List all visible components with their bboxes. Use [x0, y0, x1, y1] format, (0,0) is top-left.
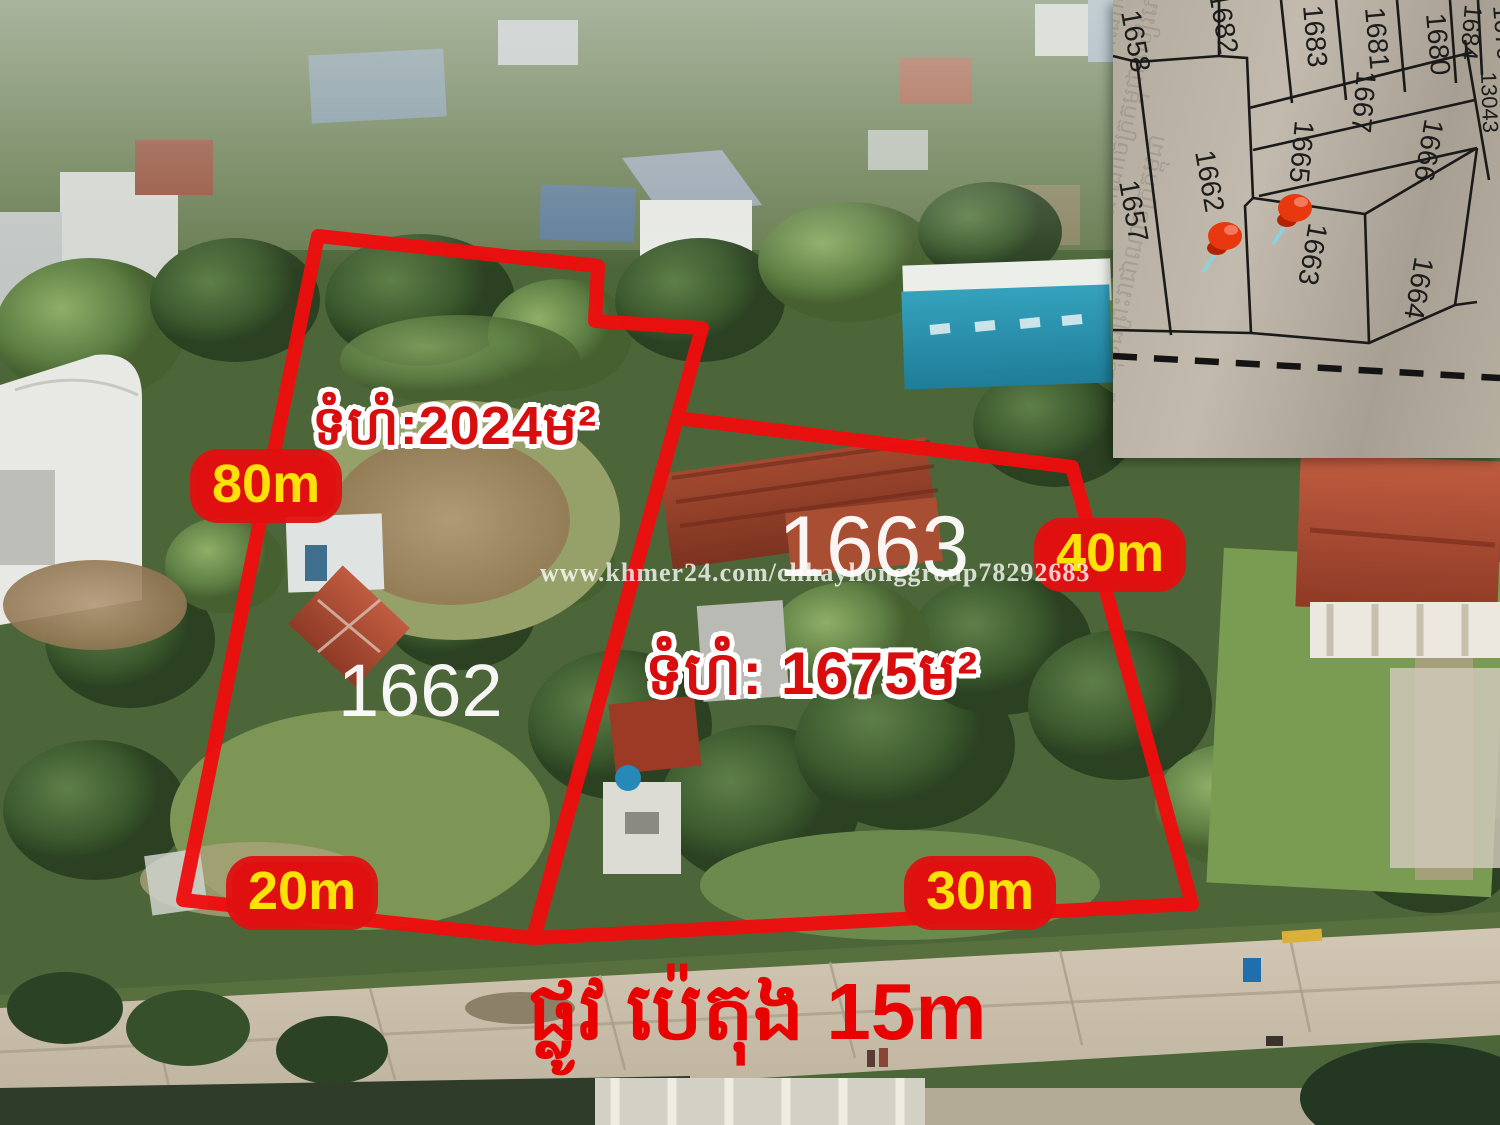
inset-parcel-number: 1680 — [1420, 12, 1456, 77]
inset-parcel-number: 1665 — [1284, 119, 1320, 184]
plot-number-1662: 1662 — [338, 648, 503, 733]
road-label: ផ្លូវ ប៉េតុង 15m — [528, 962, 986, 1079]
inset-parcel-number: 1662 — [1189, 148, 1230, 215]
blue-bin — [1243, 958, 1261, 982]
water-tank — [615, 765, 641, 791]
villa-roof — [1295, 455, 1500, 614]
inset-parcel-drawing: 1658 1682 1683 1681 1680 1684 1679 13043… — [1113, 0, 1500, 458]
inset-parcel-number: 1681 — [1359, 6, 1395, 71]
inset-parcel-number: 1684 — [1454, 3, 1487, 61]
area-label-plot-1663: ទំហំ: 1675ម² — [645, 636, 978, 724]
area-label-plot-1662: ទំហំ:2024ម² — [312, 392, 597, 471]
cadastral-inset-map: ព្រះរាជាណាចក្រកម្ពុជា សៀវភៅគោលបញ្ជីដីធ្ល… — [1113, 0, 1500, 458]
dimension-label-30m: 30m — [910, 862, 1050, 924]
inset-parcel-number: 1664 — [1398, 255, 1439, 322]
blue-building — [901, 284, 1112, 389]
villa-walls — [1310, 602, 1500, 658]
pushpin-icon — [1203, 222, 1242, 272]
inset-parcel-number: 1683 — [1297, 4, 1333, 69]
inset-parcel-number: 1658 — [1115, 8, 1156, 75]
inset-parcel-number: 13043 — [1476, 71, 1500, 133]
white-gate-wall — [595, 1078, 925, 1125]
inset-parcel-number: 1657 — [1113, 178, 1154, 245]
dimension-label-80m: 80m — [196, 455, 336, 517]
inset-parcel-number: 1679 — [1487, 4, 1500, 62]
land-listing-image: ទំហំ:2024ម² ទំហំ: 1675ម² 1662 1663 80m 2… — [0, 0, 1500, 1125]
inset-parcel-number: 1667 — [1346, 69, 1382, 134]
inset-parcel-number: 1666 — [1408, 117, 1449, 184]
inset-road-dashed-line — [1113, 356, 1500, 378]
dimension-label-20m: 20m — [232, 862, 372, 924]
dog — [1266, 1036, 1283, 1046]
palm-tree — [7, 972, 123, 1044]
inset-parcel-number: 1663 — [1292, 221, 1333, 288]
watermark: www.khmer24.com/chhayhonggroup78292683 — [540, 558, 1090, 588]
inset-parcel-numbers: 1658 1682 1683 1681 1680 1684 1679 13043… — [1113, 0, 1500, 322]
palm-tree — [276, 1016, 388, 1084]
inset-parcel-number: 1682 — [1203, 0, 1244, 56]
palm-tree — [126, 990, 250, 1066]
